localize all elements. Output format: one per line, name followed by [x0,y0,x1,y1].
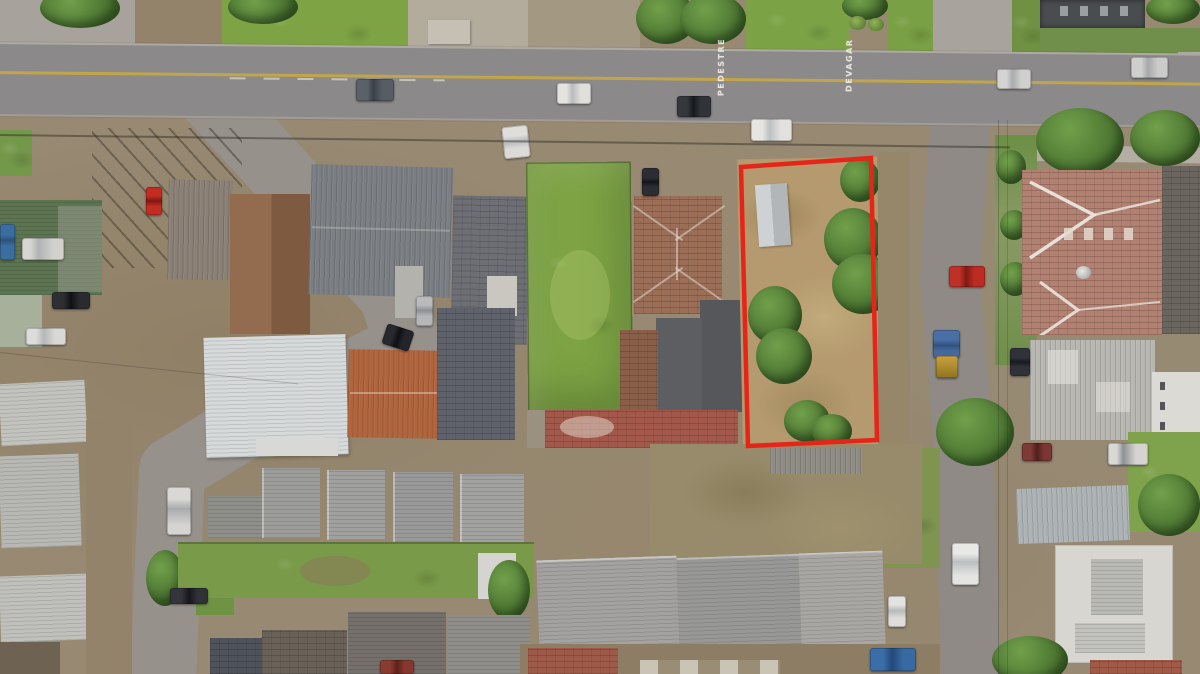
aerial-photo: PEDESTRE DEVAGAR [0,0,1200,674]
property-boundary-outline [741,158,877,446]
property-boundary [0,0,1200,674]
